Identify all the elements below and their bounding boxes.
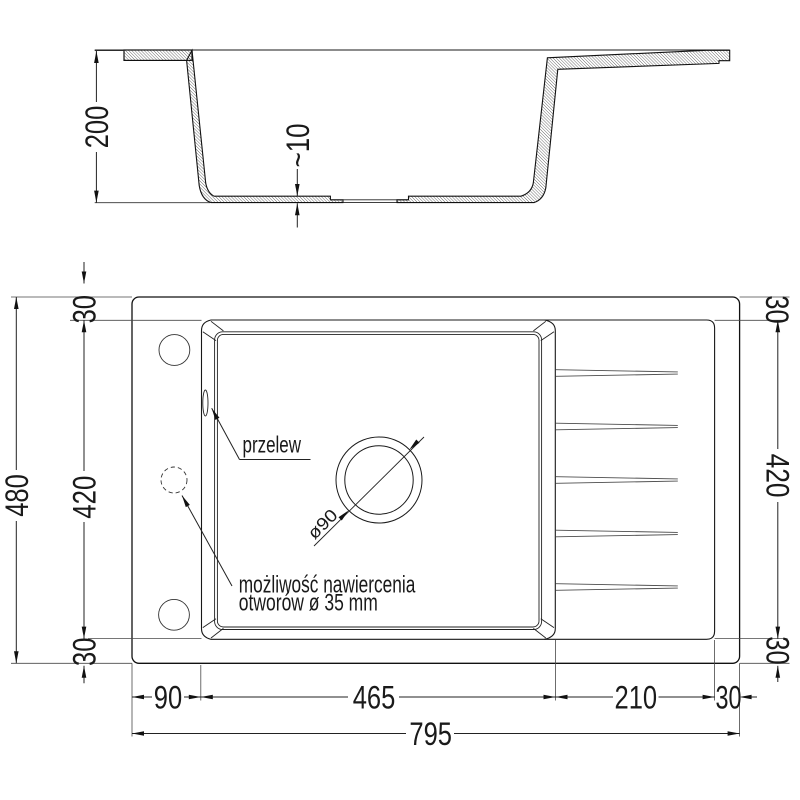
svg-text:30: 30: [716, 679, 742, 715]
svg-text:420: 420: [759, 454, 795, 498]
svg-text:przelew: przelew: [243, 432, 302, 458]
svg-text:otworów ø 35 mm: otworów ø 35 mm: [239, 589, 378, 616]
svg-text:420: 420: [66, 476, 102, 519]
svg-text:30: 30: [759, 295, 795, 323]
svg-text:30: 30: [66, 295, 102, 323]
svg-text:30: 30: [66, 638, 102, 666]
svg-text:480: 480: [0, 474, 35, 517]
svg-text:~10: ~10: [280, 123, 316, 167]
svg-text:90: 90: [154, 679, 182, 715]
svg-text:795: 795: [409, 716, 452, 752]
svg-text:30: 30: [759, 636, 795, 664]
svg-text:465: 465: [353, 679, 396, 715]
svg-text:200: 200: [79, 106, 115, 149]
svg-text:210: 210: [615, 679, 658, 715]
svg-text:ø90: ø90: [303, 505, 341, 543]
